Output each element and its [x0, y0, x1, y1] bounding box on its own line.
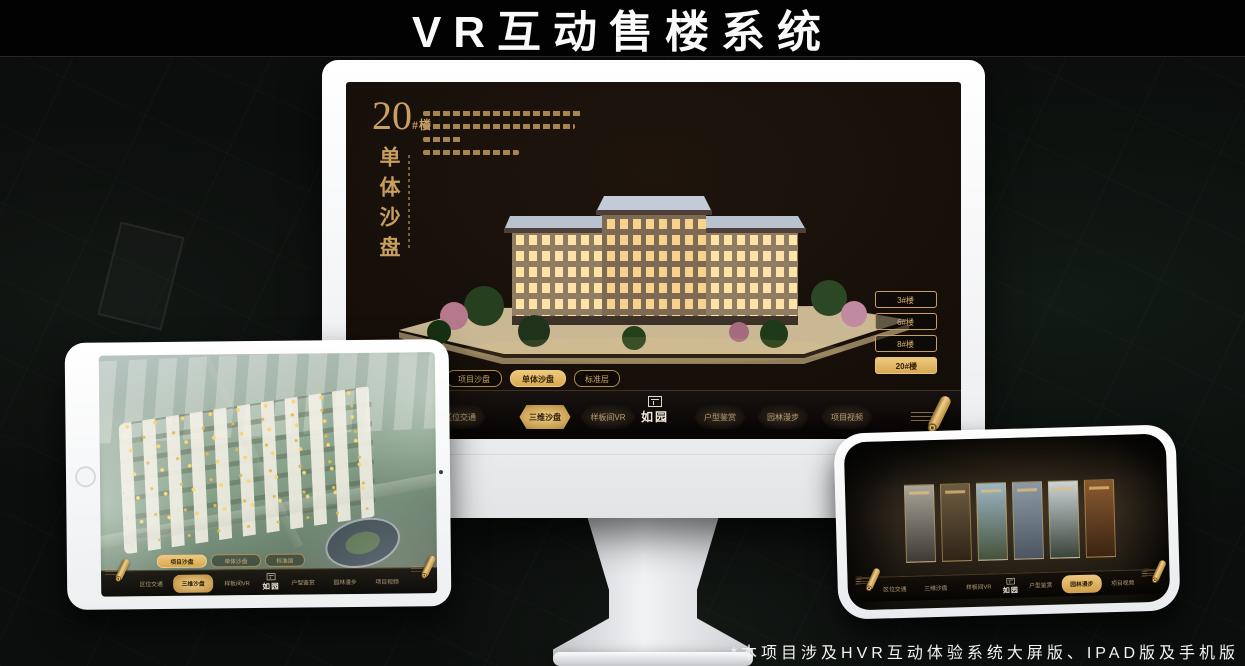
- ipad-nav-bar: 区位交通 三维沙盘 样板间VR 如园 户型鉴赏 园林漫步 项目视频: [101, 567, 437, 597]
- description-text-line: [423, 111, 583, 116]
- subtab-standard-floor[interactable]: 标准层: [265, 554, 305, 567]
- building-number: 20: [372, 93, 412, 138]
- logo-text: 如园: [641, 408, 669, 425]
- nav-item-showroom-vr[interactable]: 样板间VR: [215, 573, 259, 591]
- floor-button-8[interactable]: 8#楼: [875, 335, 937, 352]
- nav-item-garden-walk[interactable]: 园林漫步: [754, 405, 812, 429]
- page-title: VR互动售楼系统: [412, 0, 833, 60]
- ipad-device: 项目沙盘 单体沙盘 标准层 区位交通 三维沙盘 样板间VR 如园 户型鉴赏 园林…: [65, 339, 452, 610]
- logo-text: 如园: [262, 581, 279, 592]
- description-text-line: [423, 124, 575, 129]
- description-paragraph: [423, 111, 583, 163]
- logo-seal-icon: [1006, 577, 1014, 584]
- floor-button-6[interactable]: 6#楼: [875, 313, 937, 330]
- nav-item-showroom-vr[interactable]: 样板间VR: [577, 405, 639, 429]
- promo-canvas: VR互动售楼系统 20#楼 单体沙盘: [0, 0, 1245, 666]
- brand-logo: 如园: [262, 573, 280, 591]
- camera-icon: [439, 470, 443, 474]
- gallery-panel[interactable]: [976, 482, 1008, 561]
- subtab-project-sandbox[interactable]: 项目沙盘: [157, 555, 207, 569]
- subtab-project-sandbox[interactable]: 项目沙盘: [446, 370, 502, 387]
- home-button[interactable]: [75, 466, 96, 487]
- subtab-single-sandbox[interactable]: 单体沙盘: [510, 370, 566, 387]
- floor-button-3[interactable]: 3#楼: [875, 291, 937, 308]
- logo-seal-icon: [648, 396, 662, 407]
- nav-item-location[interactable]: 区位交通: [131, 574, 171, 592]
- building-3d-view[interactable]: [384, 168, 924, 368]
- gallery-panel[interactable]: [1084, 479, 1116, 558]
- phone-nav-bar: 区位交通 三维沙盘 样板间VR 如园 户型鉴赏 园林漫步 项目视频: [855, 569, 1162, 603]
- nav-item-3d-sandbox[interactable]: 三维沙盘: [916, 578, 956, 597]
- footnote-text: *本项目涉及HVR互动体验系统大屏版、IPAD版及手机版: [731, 639, 1239, 663]
- phone-device: 区位交通 三维沙盘 样板间VR 如园 户型鉴赏 园林漫步 项目视频: [833, 424, 1180, 619]
- nav-item-garden-walk[interactable]: 园林漫步: [325, 572, 365, 590]
- scroll-ornament-icon[interactable]: [855, 568, 880, 593]
- nav-item-showroom-vr[interactable]: 样板间VR: [957, 577, 1001, 596]
- phone-app-screen[interactable]: 区位交通 三维沙盘 样板间VR 如园 户型鉴赏 园林漫步 项目视频: [844, 434, 1171, 611]
- logo-text: 如园: [1003, 584, 1020, 594]
- nav-item-project-video[interactable]: 项目视频: [1102, 573, 1142, 592]
- header-bar: VR互动售楼系统: [0, 0, 1245, 57]
- description-text-line: [423, 137, 463, 142]
- scroll-ornament-icon[interactable]: [411, 555, 436, 580]
- floor-button-20[interactable]: 20#楼: [875, 357, 937, 374]
- brand-logo: 如园: [641, 396, 669, 425]
- ipad-subtab-bar: 项目沙盘 单体沙盘 标准层: [157, 554, 305, 569]
- subtab-single-sandbox[interactable]: 单体沙盘: [211, 554, 261, 568]
- nav-item-3d-sandbox[interactable]: 三维沙盘: [516, 405, 574, 429]
- logo-seal-icon: [267, 573, 276, 580]
- scroll-ornament-icon[interactable]: [105, 558, 130, 583]
- nav-item-location[interactable]: 区位交通: [875, 580, 915, 599]
- nav-item-3d-sandbox[interactable]: 三维沙盘: [173, 574, 213, 592]
- nav-item-project-video[interactable]: 项目视频: [818, 405, 876, 429]
- scroll-ornament-icon[interactable]: [911, 395, 951, 435]
- nav-item-unit-plans[interactable]: 户型鉴赏: [1020, 576, 1060, 595]
- monitor-stand: [553, 516, 753, 658]
- ipad-app-screen[interactable]: 项目沙盘 单体沙盘 标准层 区位交通 三维沙盘 样板间VR 如园 户型鉴赏 园林…: [99, 352, 438, 597]
- gallery-panel[interactable]: [904, 484, 936, 563]
- panorama-gallery: [904, 479, 1116, 563]
- description-text-line: [423, 150, 519, 155]
- gallery-panel[interactable]: [1048, 480, 1080, 559]
- gallery-panel[interactable]: [1012, 481, 1044, 560]
- monitor-base: [553, 652, 753, 666]
- brand-logo: 如园: [1002, 577, 1019, 594]
- background-plaque: [97, 221, 184, 330]
- nav-item-garden-walk[interactable]: 园林漫步: [1061, 574, 1101, 593]
- gallery-panel[interactable]: [940, 483, 972, 562]
- floor-button-group: 3#楼 6#楼 8#楼 20#楼: [875, 291, 937, 374]
- nav-item-unit-plans[interactable]: 户型鉴赏: [691, 405, 749, 429]
- nav-item-unit-plans[interactable]: 户型鉴赏: [283, 573, 323, 591]
- sandbox-subtab-bar: 项目沙盘 单体沙盘 标准层: [446, 370, 620, 387]
- subtab-standard-floor[interactable]: 标准层: [574, 370, 620, 387]
- scroll-ornament-icon[interactable]: [1141, 560, 1166, 585]
- nav-item-project-video[interactable]: 项目视频: [367, 572, 407, 590]
